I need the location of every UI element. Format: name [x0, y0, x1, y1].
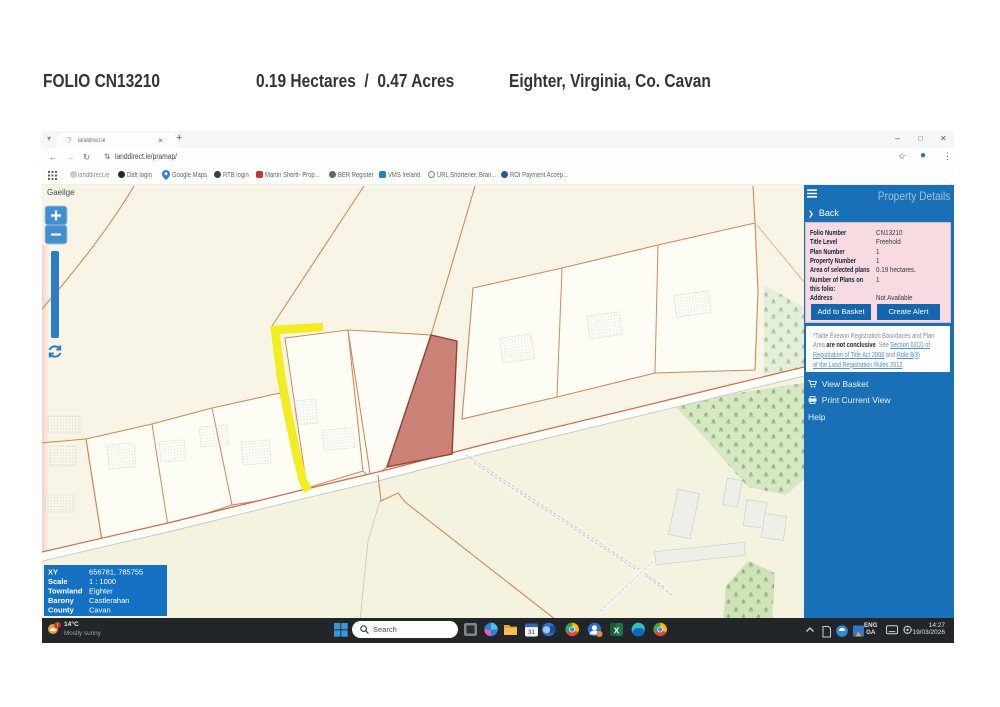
svg-text:Eighter: Eighter	[89, 587, 113, 596]
svg-text:Cavan: Cavan	[89, 606, 111, 615]
svg-text:Scale: Scale	[48, 577, 68, 586]
svg-text:1 : 1000: 1 : 1000	[89, 577, 116, 586]
svg-text:Townland: Townland	[48, 587, 83, 596]
svg-text:Barony: Barony	[48, 596, 75, 605]
svg-text:X: X	[614, 626, 620, 636]
svg-text:31: 31	[528, 630, 535, 636]
svg-text:656781, 785755: 656781, 785755	[89, 568, 143, 577]
svg-text:XY: XY	[48, 568, 58, 577]
svg-text:County: County	[48, 606, 75, 615]
svg-text:Castlerahan: Castlerahan	[89, 596, 129, 605]
svg-text:Gaeilge: Gaeilge	[47, 188, 75, 197]
